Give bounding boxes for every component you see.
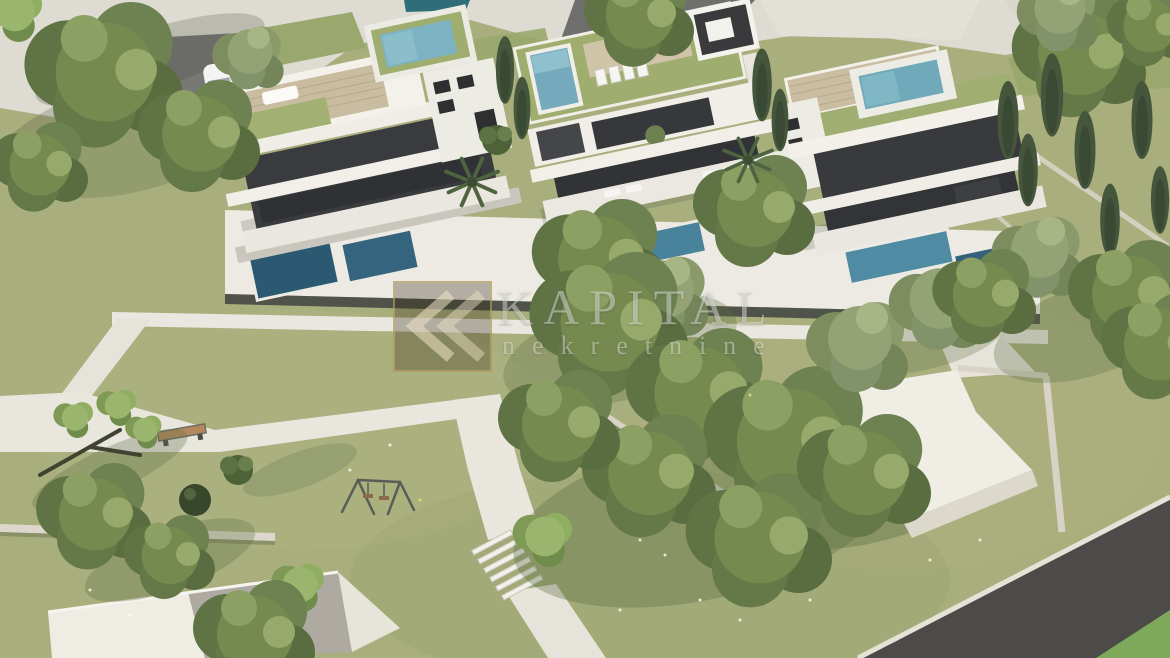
render-image: KAPITAL nekretnine bbox=[0, 0, 1170, 658]
sphere-bush bbox=[179, 484, 211, 516]
scene-svg bbox=[0, 0, 1170, 658]
